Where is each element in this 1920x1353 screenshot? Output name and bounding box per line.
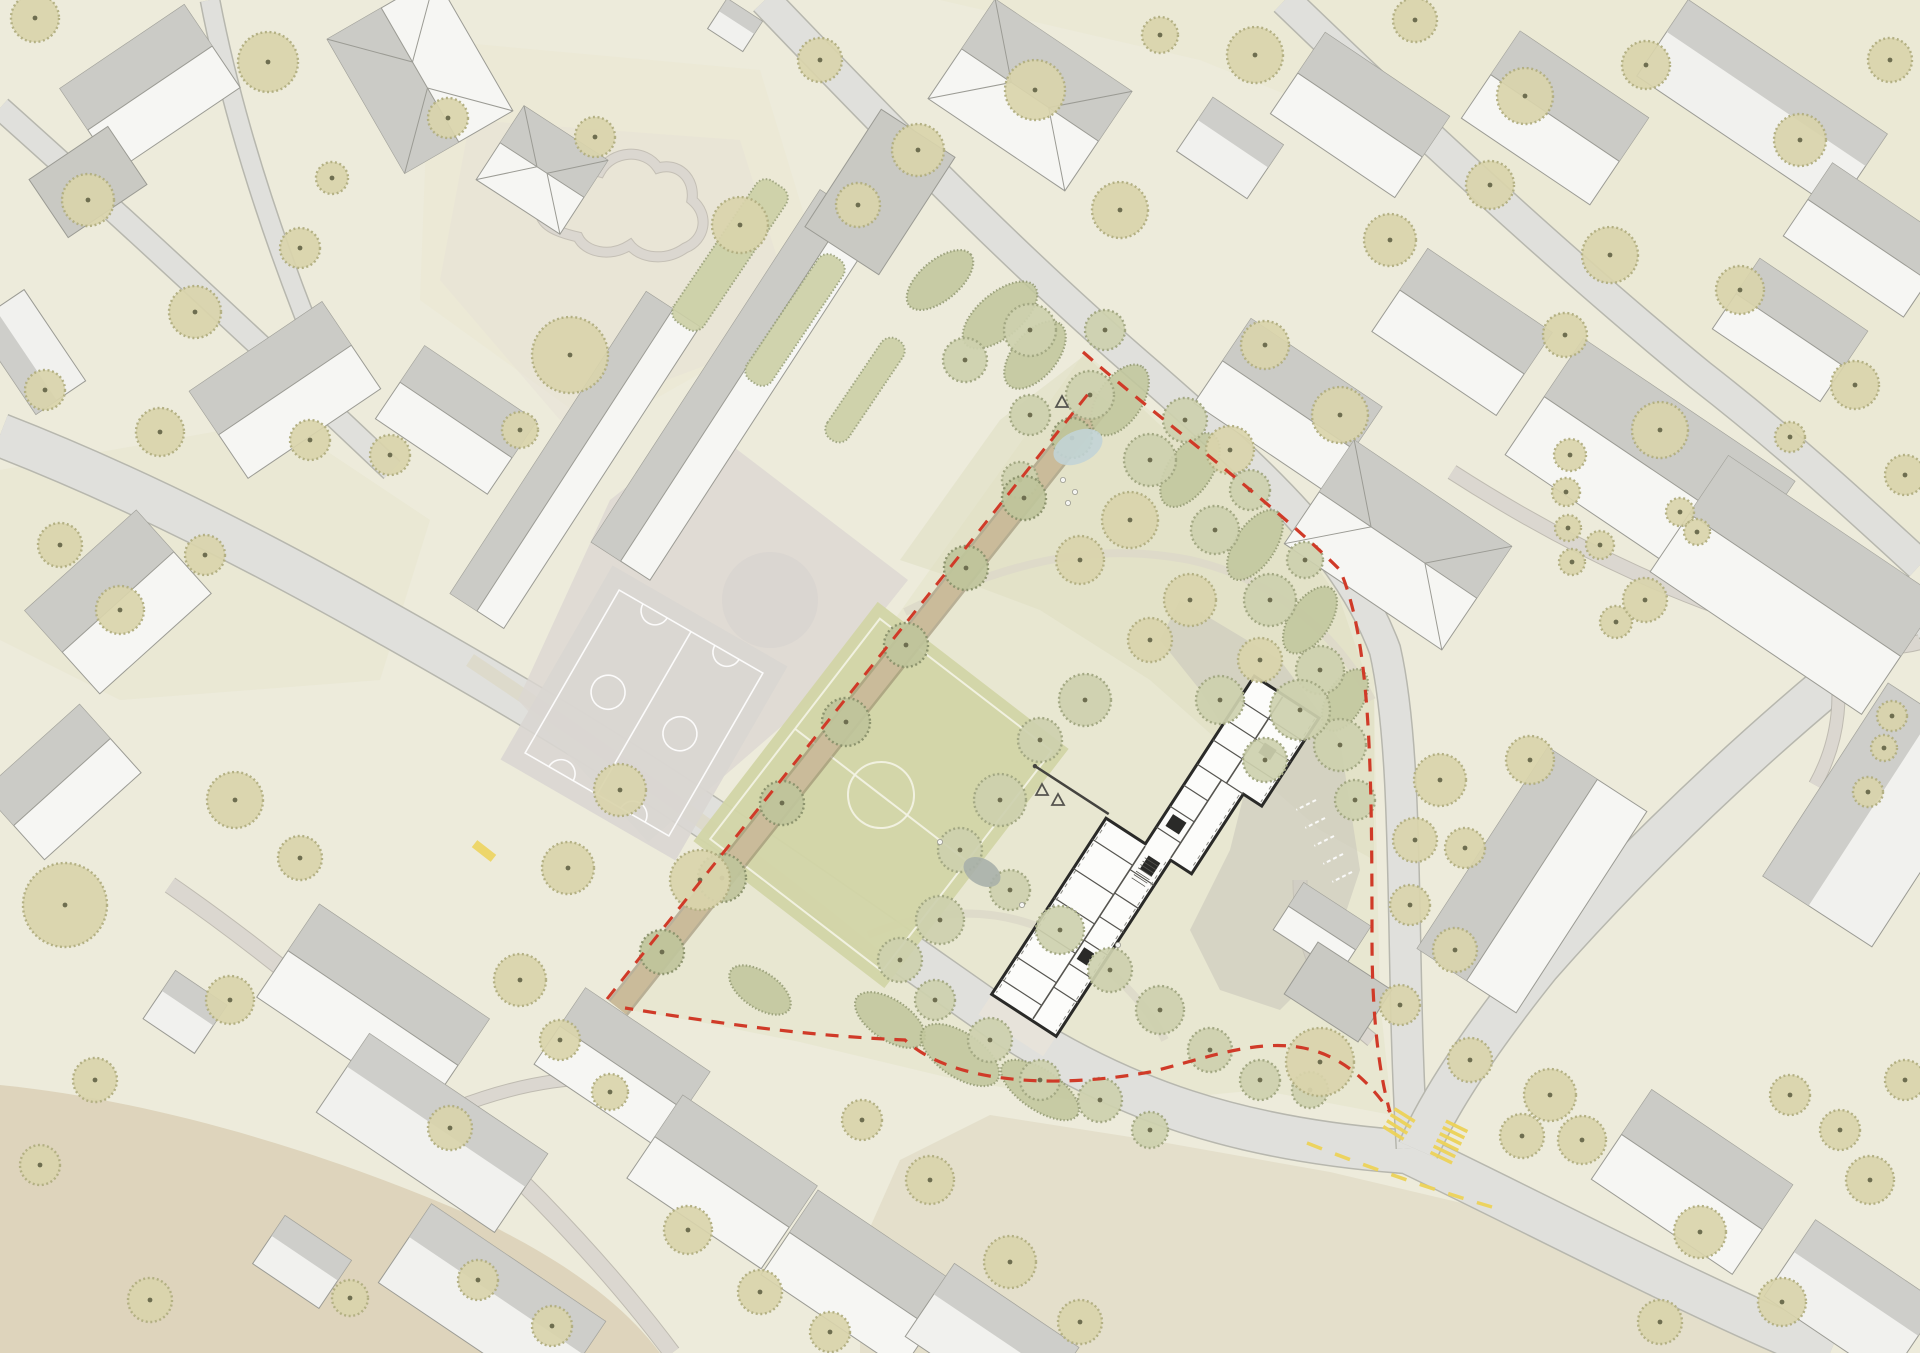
tree-trunk-dot xyxy=(1263,343,1268,348)
tree xyxy=(1684,519,1710,545)
tree xyxy=(1500,1114,1544,1158)
tree-trunk-dot xyxy=(1318,668,1323,673)
tree-trunk-dot xyxy=(1548,1093,1553,1098)
tree-trunk-dot xyxy=(1580,1138,1585,1143)
tree xyxy=(1085,310,1125,350)
tree-trunk-dot xyxy=(568,353,573,358)
tree-trunk-dot xyxy=(998,798,1003,803)
tree xyxy=(458,1260,498,1300)
tree xyxy=(1088,948,1132,992)
tree-trunk-dot xyxy=(1608,253,1613,258)
tree xyxy=(1448,1038,1492,1082)
tree-trunk-dot xyxy=(1866,790,1871,795)
tree-trunk-dot xyxy=(1338,743,1343,748)
tree xyxy=(290,420,330,460)
tree-trunk-dot xyxy=(1438,778,1443,783)
tree-trunk-dot xyxy=(93,1078,98,1083)
tree xyxy=(38,523,82,567)
tree xyxy=(1164,574,1216,626)
tree-trunk-dot xyxy=(1388,238,1393,243)
tree xyxy=(1775,422,1805,452)
tree xyxy=(1286,1028,1354,1096)
boulder xyxy=(1060,477,1065,482)
tree-trunk-dot xyxy=(1028,328,1033,333)
tree-trunk-dot xyxy=(518,428,523,433)
tree-trunk-dot xyxy=(1028,413,1033,418)
tree-trunk-dot xyxy=(1008,888,1013,893)
tree-trunk-dot xyxy=(1413,18,1418,23)
tree-trunk-dot xyxy=(928,1178,933,1183)
tree-trunk-dot xyxy=(1658,428,1663,433)
tree xyxy=(1770,1075,1810,1115)
tree xyxy=(738,1270,782,1314)
tree xyxy=(1846,1156,1894,1204)
tree xyxy=(906,1156,954,1204)
site-plan-map xyxy=(0,0,1920,1353)
tree xyxy=(25,370,65,410)
tree xyxy=(878,938,922,982)
tree xyxy=(1623,578,1667,622)
tree xyxy=(502,412,538,448)
tree xyxy=(1871,735,1897,761)
tree-trunk-dot xyxy=(1868,1178,1873,1183)
tree-trunk-dot xyxy=(1798,138,1803,143)
tree-trunk-dot xyxy=(1353,798,1358,803)
tree xyxy=(1002,476,1046,520)
tree xyxy=(1238,638,1282,682)
tree xyxy=(1555,515,1581,541)
tree xyxy=(1010,395,1050,435)
tree xyxy=(185,535,225,575)
tree xyxy=(1092,182,1148,238)
tree-trunk-dot xyxy=(1453,948,1458,953)
tree-trunk-dot xyxy=(388,453,393,458)
tree-trunk-dot xyxy=(330,176,335,181)
tree-trunk-dot xyxy=(118,608,123,613)
tree-trunk-dot xyxy=(233,798,238,803)
tree xyxy=(1716,266,1764,314)
tree-trunk-dot xyxy=(1658,1320,1663,1325)
boulder xyxy=(1072,489,1077,494)
tree xyxy=(11,0,59,42)
tree-trunk-dot xyxy=(228,998,233,1003)
tree xyxy=(1058,1300,1102,1344)
tree-trunk-dot xyxy=(988,1038,993,1043)
tree xyxy=(884,623,928,667)
tree xyxy=(1445,828,1485,868)
tree-trunk-dot xyxy=(1338,413,1343,418)
tree-trunk-dot xyxy=(1463,846,1468,851)
tree xyxy=(1196,676,1244,724)
tree xyxy=(23,863,107,947)
tree xyxy=(892,124,944,176)
tree xyxy=(128,1278,172,1322)
tree-trunk-dot xyxy=(1033,88,1038,93)
tree xyxy=(1056,536,1104,584)
tree xyxy=(984,1236,1036,1288)
tree xyxy=(540,1020,580,1060)
tree-trunk-dot xyxy=(1108,968,1113,973)
tree xyxy=(1188,1028,1232,1072)
tree-trunk-dot xyxy=(933,998,938,1003)
tree xyxy=(944,546,988,590)
tree-trunk-dot xyxy=(1882,746,1887,751)
tree xyxy=(1506,736,1554,784)
tree xyxy=(1241,321,1289,369)
tree xyxy=(1466,161,1514,209)
tree-trunk-dot xyxy=(1058,928,1063,933)
boulder xyxy=(1019,902,1024,907)
tree xyxy=(1312,387,1368,443)
tree xyxy=(1124,434,1176,486)
tree xyxy=(1524,1069,1576,1121)
tree xyxy=(1552,478,1580,506)
tree-trunk-dot xyxy=(1103,328,1108,333)
tree-trunk-dot xyxy=(844,720,849,725)
tree-trunk-dot xyxy=(856,203,861,208)
tree xyxy=(943,338,987,382)
tree-trunk-dot xyxy=(518,978,523,983)
tree xyxy=(1554,439,1586,471)
tree-trunk-dot xyxy=(1853,383,1858,388)
tree xyxy=(370,435,410,475)
tree xyxy=(1582,227,1638,283)
tree-trunk-dot xyxy=(1078,1320,1083,1325)
tree-trunk-dot xyxy=(1088,393,1093,398)
tree-trunk-dot xyxy=(1780,1300,1785,1305)
tree xyxy=(1390,885,1430,925)
tree xyxy=(207,772,263,828)
tree xyxy=(1132,1112,1168,1148)
tree-trunk-dot xyxy=(1695,530,1700,535)
tree-trunk-dot xyxy=(938,918,943,923)
tree-trunk-dot xyxy=(1570,560,1575,565)
tree-trunk-dot xyxy=(1563,333,1568,338)
tree-trunk-dot xyxy=(758,1290,763,1295)
tree xyxy=(1774,114,1826,166)
tree xyxy=(532,317,608,393)
tree xyxy=(1543,313,1587,357)
tree xyxy=(836,183,880,227)
tree xyxy=(640,930,684,974)
tree-trunk-dot xyxy=(1890,714,1895,719)
tree-trunk-dot xyxy=(898,958,903,963)
tree-trunk-dot xyxy=(904,643,909,648)
tree-trunk-dot xyxy=(448,1126,453,1131)
tree xyxy=(670,850,730,910)
tree-trunk-dot xyxy=(298,246,303,251)
tree-trunk-dot xyxy=(1413,838,1418,843)
tree xyxy=(332,1280,368,1316)
tree xyxy=(428,1106,472,1150)
tree-trunk-dot xyxy=(1903,1078,1908,1083)
tree xyxy=(968,1018,1012,1062)
tree-trunk-dot xyxy=(1838,1128,1843,1133)
tree-trunk-dot xyxy=(1738,288,1743,293)
tree-trunk-dot xyxy=(1208,1048,1213,1053)
tree-trunk-dot xyxy=(1078,558,1083,563)
tree xyxy=(1018,718,1062,762)
tree-trunk-dot xyxy=(1228,448,1233,453)
tree-trunk-dot xyxy=(860,1118,865,1123)
tree-trunk-dot xyxy=(348,1296,353,1301)
tree xyxy=(1638,1300,1682,1344)
tree xyxy=(62,174,114,226)
tree-trunk-dot xyxy=(1614,620,1619,625)
schoolyard-plaza xyxy=(722,552,818,648)
tree-trunk-dot xyxy=(1158,33,1163,38)
tree-trunk-dot xyxy=(1038,738,1043,743)
tree-trunk-dot xyxy=(1698,1230,1703,1235)
tree-trunk-dot xyxy=(1398,1003,1403,1008)
tree xyxy=(169,286,221,338)
tree xyxy=(760,781,804,825)
tree-trunk-dot xyxy=(1318,1060,1323,1065)
site-plan-stage xyxy=(0,0,1920,1353)
tree xyxy=(1078,1078,1122,1122)
tree-trunk-dot xyxy=(38,1163,43,1168)
tree-trunk-dot xyxy=(618,788,623,793)
tree-trunk-dot xyxy=(1263,758,1268,763)
tree xyxy=(1632,402,1688,458)
tree-trunk-dot xyxy=(958,848,963,853)
tree-trunk-dot xyxy=(1022,496,1027,501)
tree-trunk-dot xyxy=(1788,1093,1793,1098)
tree xyxy=(1414,754,1466,806)
tree-trunk-dot xyxy=(686,1228,691,1233)
tree-trunk-dot xyxy=(1298,708,1303,713)
tree-trunk-dot xyxy=(446,116,451,121)
tree-trunk-dot xyxy=(1183,418,1188,423)
tree xyxy=(1853,777,1883,807)
tree-trunk-dot xyxy=(1188,598,1193,603)
tree-trunk-dot xyxy=(266,60,271,65)
tree xyxy=(1206,426,1254,474)
tree-trunk-dot xyxy=(1644,63,1649,68)
tree-trunk-dot xyxy=(1098,1098,1103,1103)
tree-trunk-dot xyxy=(298,856,303,861)
tree-trunk-dot xyxy=(1258,658,1263,663)
tree xyxy=(822,698,870,746)
tree xyxy=(1758,1278,1806,1326)
tree xyxy=(1004,304,1056,356)
tree xyxy=(1558,1116,1606,1164)
tree-trunk-dot xyxy=(1564,490,1569,495)
tree-trunk-dot xyxy=(58,543,63,548)
tree xyxy=(1191,506,1239,554)
tree xyxy=(1497,68,1553,124)
tree xyxy=(1142,17,1178,53)
tree-trunk-dot xyxy=(1213,528,1218,533)
tree xyxy=(594,764,646,816)
tree-trunk-dot xyxy=(1258,1078,1263,1083)
tree-trunk-dot xyxy=(1148,458,1153,463)
tree xyxy=(73,1058,117,1102)
tree-trunk-dot xyxy=(566,866,571,871)
tree xyxy=(1868,38,1912,82)
tree xyxy=(316,162,348,194)
tree xyxy=(592,1074,628,1110)
tree xyxy=(1102,492,1158,548)
tree xyxy=(278,836,322,880)
tree-trunk-dot xyxy=(1268,598,1273,603)
tree xyxy=(1005,60,1065,120)
boulder xyxy=(1115,942,1120,947)
tree-trunk-dot xyxy=(1678,510,1683,515)
tree-trunk-dot xyxy=(203,553,208,558)
tree-trunk-dot xyxy=(1118,208,1123,213)
tree xyxy=(810,1312,850,1352)
tree xyxy=(1163,398,1207,442)
tree-trunk-dot xyxy=(1158,1008,1163,1013)
tree-trunk-dot xyxy=(308,438,313,443)
tree-trunk-dot xyxy=(158,430,163,435)
tree xyxy=(1831,361,1879,409)
tree-trunk-dot xyxy=(1468,1058,1473,1063)
tree xyxy=(1393,0,1437,42)
tree xyxy=(96,586,144,634)
tree-trunk-dot xyxy=(1523,94,1528,99)
tree xyxy=(1136,986,1184,1034)
tree-trunk-dot xyxy=(1788,435,1793,440)
tree xyxy=(1059,674,1111,726)
tree-trunk-dot xyxy=(660,950,665,955)
tree xyxy=(206,976,254,1024)
tree xyxy=(1036,906,1084,954)
tree-trunk-dot xyxy=(148,1298,153,1303)
tree xyxy=(532,1306,572,1346)
tree-trunk-dot xyxy=(608,1090,613,1095)
tree-trunk-dot xyxy=(550,1324,555,1329)
tree xyxy=(1066,371,1114,419)
tree-trunk-dot xyxy=(1598,543,1603,548)
tree xyxy=(280,228,320,268)
tree-trunk-dot xyxy=(1148,1128,1153,1133)
tree xyxy=(238,32,298,92)
tree-trunk-dot xyxy=(1488,183,1493,188)
tree xyxy=(136,408,184,456)
tree xyxy=(664,1206,712,1254)
tree xyxy=(1240,1060,1280,1100)
tree-trunk-dot xyxy=(780,801,785,806)
tree xyxy=(1674,1206,1726,1258)
tree-trunk-dot xyxy=(1083,698,1088,703)
tree-trunk-dot xyxy=(1253,53,1258,58)
boulder xyxy=(1065,500,1070,505)
tree xyxy=(1433,928,1477,972)
tree xyxy=(1622,41,1670,89)
tree xyxy=(1559,549,1585,575)
tree xyxy=(494,954,546,1006)
tree xyxy=(1820,1110,1860,1150)
tree-trunk-dot xyxy=(1128,518,1133,523)
tree-trunk-dot xyxy=(1568,453,1573,458)
tree xyxy=(1380,985,1420,1025)
tree-trunk-dot xyxy=(63,903,68,908)
tree-trunk-dot xyxy=(43,388,48,393)
tree xyxy=(575,117,615,157)
tree-trunk-dot xyxy=(828,1330,833,1335)
tree xyxy=(1243,738,1287,782)
tree-trunk-dot xyxy=(1643,598,1648,603)
tree-trunk-dot xyxy=(964,566,969,571)
tree-trunk-dot xyxy=(1148,638,1153,643)
tree-trunk-dot xyxy=(916,148,921,153)
tree xyxy=(916,896,964,944)
tree-trunk-dot xyxy=(1903,473,1908,478)
tree xyxy=(1586,531,1614,559)
tree-trunk-dot xyxy=(476,1278,481,1283)
tree-trunk-dot xyxy=(33,16,38,21)
tree xyxy=(542,842,594,894)
tree xyxy=(1227,27,1283,83)
tree xyxy=(798,38,842,82)
tree xyxy=(974,774,1026,826)
tree-trunk-dot xyxy=(738,223,743,228)
tree-trunk-dot xyxy=(1008,1260,1013,1265)
tree xyxy=(1393,818,1437,862)
tree-trunk-dot xyxy=(1303,558,1308,563)
tree-trunk-dot xyxy=(1408,903,1413,908)
tree xyxy=(428,98,468,138)
tree xyxy=(1270,680,1330,740)
tree-trunk-dot xyxy=(1888,58,1893,63)
tree xyxy=(1877,701,1907,731)
tree-trunk-dot xyxy=(593,135,598,140)
tree-trunk-dot xyxy=(963,358,968,363)
tree-trunk-dot xyxy=(86,198,91,203)
tree-trunk-dot xyxy=(193,310,198,315)
tree xyxy=(1364,214,1416,266)
tree-trunk-dot xyxy=(1038,1078,1043,1083)
tree xyxy=(1128,618,1172,662)
tree xyxy=(842,1100,882,1140)
tree xyxy=(1244,574,1296,626)
boulder xyxy=(937,839,942,844)
tree-trunk-dot xyxy=(1528,758,1533,763)
tree-trunk-dot xyxy=(1218,698,1223,703)
tree-trunk-dot xyxy=(558,1038,563,1043)
tree-trunk-dot xyxy=(1566,526,1571,531)
tree xyxy=(915,980,955,1020)
tree xyxy=(712,197,768,253)
tree xyxy=(20,1145,60,1185)
tree-trunk-dot xyxy=(1520,1134,1525,1139)
tree-trunk-dot xyxy=(818,58,823,63)
